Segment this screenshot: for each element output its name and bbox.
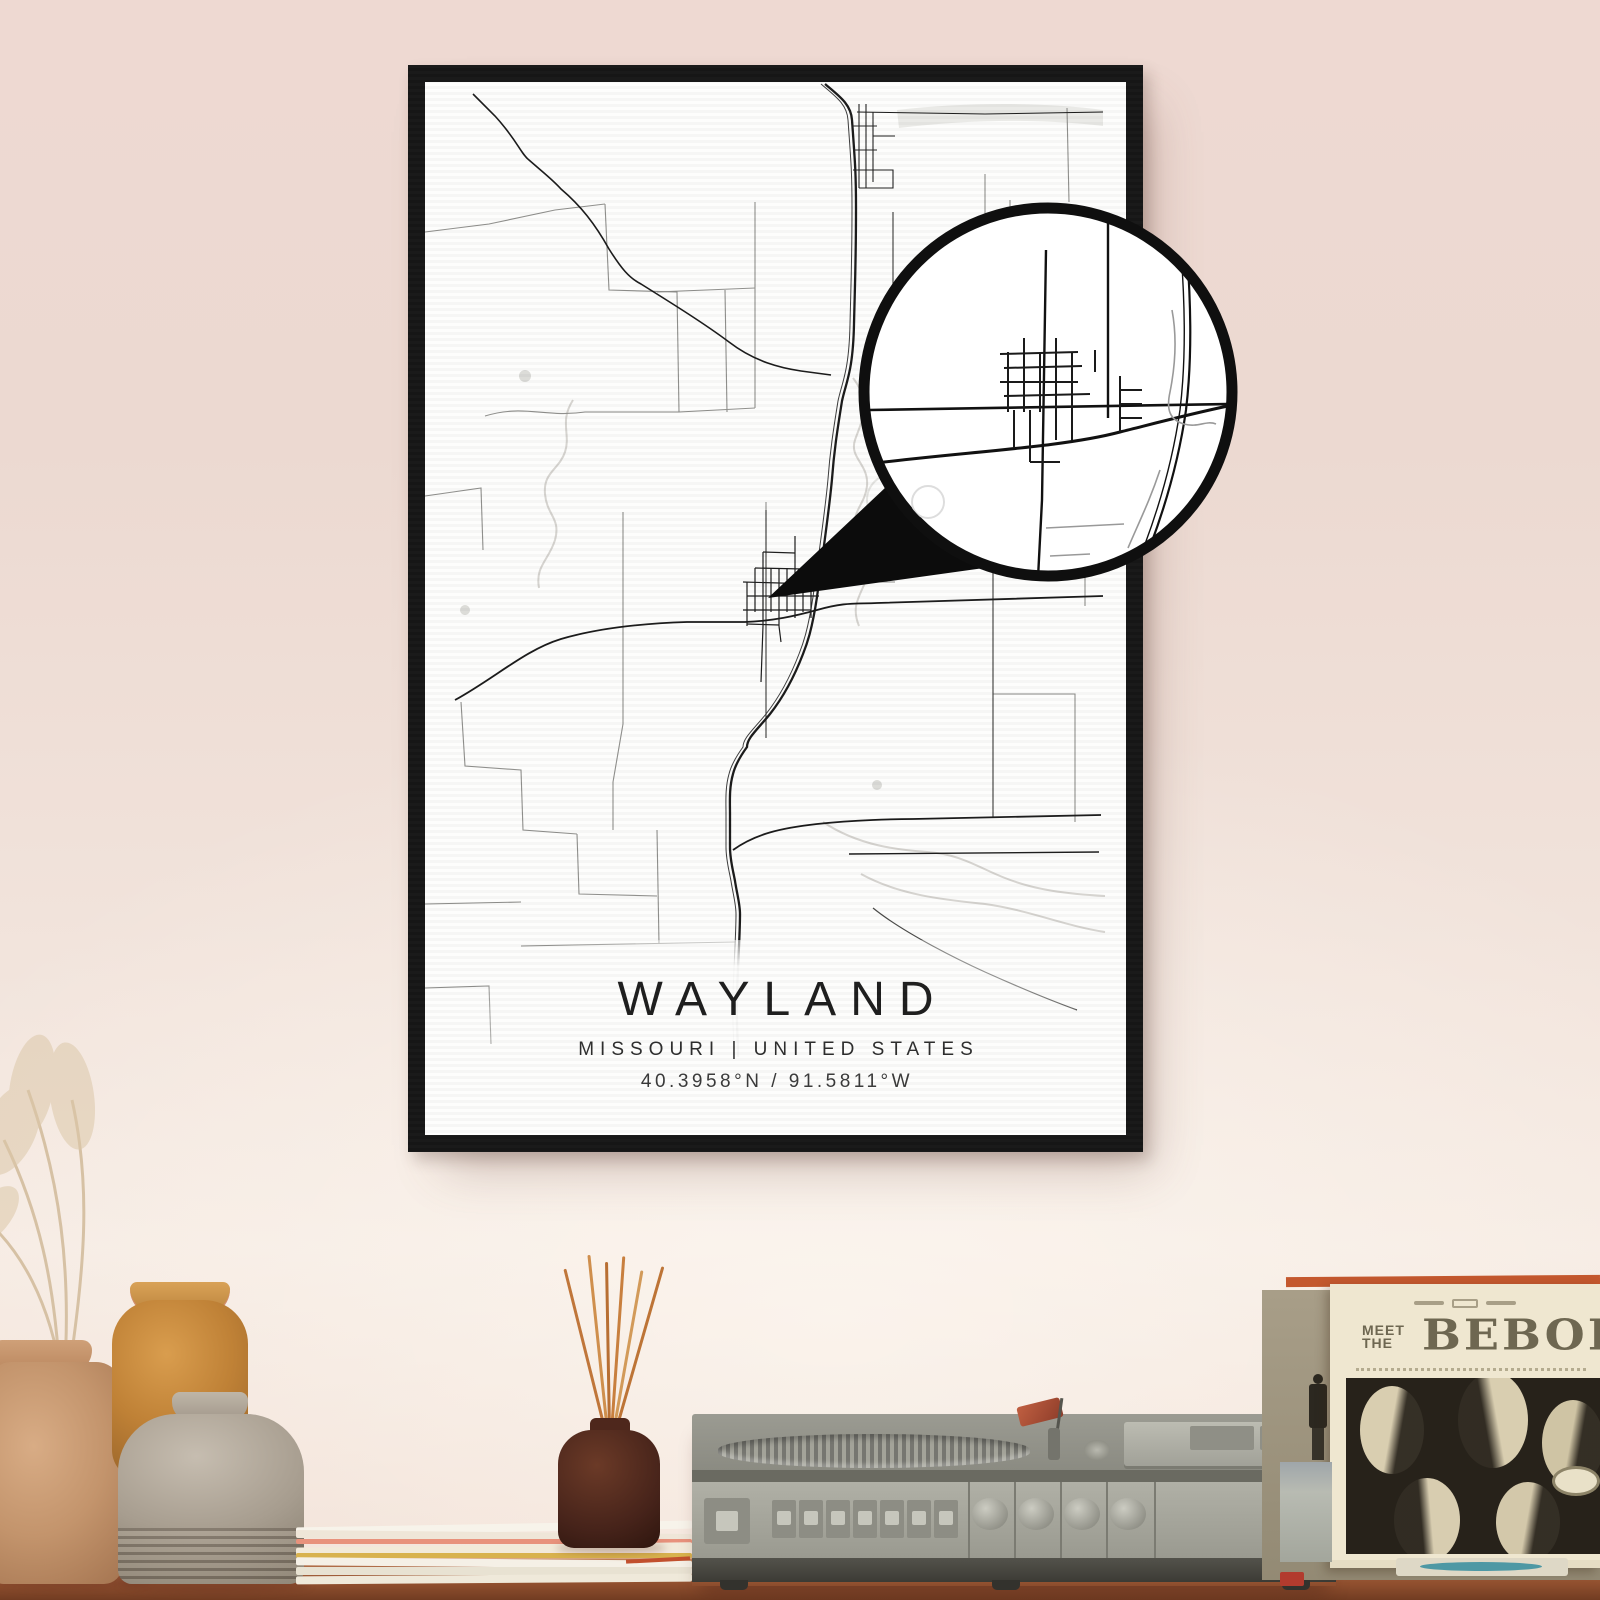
album-word-the: THE: [1362, 1337, 1405, 1350]
gray-vase-ridges: [118, 1528, 304, 1584]
player-button: [826, 1500, 850, 1538]
magazine: [296, 1574, 692, 1585]
character-face: [1394, 1478, 1460, 1554]
mark: [1486, 1301, 1516, 1305]
player-button: [934, 1500, 958, 1538]
bass-knob: [1018, 1498, 1054, 1530]
player-button: [880, 1500, 904, 1538]
mark: [1414, 1301, 1444, 1305]
poster-title: WAYLAND: [476, 972, 1076, 1027]
poster-coordinates: 40.3958°N / 91.5811°W: [476, 1071, 1076, 1093]
player-button: [853, 1500, 877, 1538]
treble-knob: [1064, 1498, 1100, 1530]
button-cap: [804, 1511, 818, 1525]
tan-vase: [0, 1362, 122, 1584]
figure-legs: [1312, 1428, 1324, 1460]
player-front-panel: [692, 1482, 1336, 1558]
tuner-knob: [1110, 1498, 1146, 1530]
panel-seam: [1106, 1482, 1108, 1558]
character-face: [1360, 1386, 1424, 1474]
panel-seam: [1154, 1482, 1156, 1558]
tonearm-post: [1048, 1428, 1060, 1460]
button-cap: [939, 1511, 953, 1525]
album-publisher-marks: [1400, 1298, 1530, 1308]
power-button-cap: [716, 1511, 738, 1531]
player-plinth: [692, 1558, 1336, 1582]
player-button: [907, 1500, 931, 1538]
diffuser-bottle: [558, 1430, 660, 1548]
panel-seam: [1060, 1482, 1062, 1558]
panel-seam: [968, 1482, 970, 1558]
album-meet-the: MEET THE: [1362, 1324, 1405, 1350]
button-cap: [912, 1511, 926, 1525]
player-foot: [720, 1580, 748, 1590]
poster-subtitle: MISSOURI | UNITED STATES: [476, 1039, 1076, 1061]
character-face: [1496, 1482, 1560, 1554]
album-dotted-line: [1356, 1368, 1586, 1371]
player-bevel: [692, 1470, 1336, 1482]
button-cap: [777, 1511, 791, 1525]
diffuser-reeds: [604, 1262, 614, 1432]
album-photo-art: [1346, 1378, 1600, 1554]
sleeve-figure-art: [1306, 1374, 1330, 1460]
album-oval-logo: [1552, 1466, 1600, 1496]
player-foot: [992, 1580, 1020, 1590]
player-button: [772, 1500, 796, 1538]
small-red-object: [1280, 1572, 1304, 1586]
deck-knob: [1084, 1440, 1110, 1460]
album-title: BEBOP: [1422, 1310, 1600, 1360]
magnifier-callout: [730, 178, 1260, 624]
figure-head: [1313, 1374, 1323, 1384]
gray-vase: [118, 1414, 304, 1584]
figure-body: [1309, 1384, 1327, 1428]
player-button: [799, 1500, 823, 1538]
character-face: [1458, 1378, 1528, 1468]
volume-knob: [972, 1498, 1008, 1530]
bebop-album-cover: MEET THE BEBOP: [1330, 1284, 1600, 1568]
water-band: [897, 104, 1103, 128]
record-player: [692, 1414, 1336, 1586]
button-cap: [831, 1511, 845, 1525]
magnifier-circle: [864, 208, 1232, 576]
turntable-platter: [718, 1434, 1030, 1468]
cassette-tab: [1190, 1426, 1254, 1450]
record-label-ellipse: [1420, 1562, 1542, 1571]
poster-title-block: WAYLAND MISSOURI | UNITED STATES 40.3958…: [476, 940, 1076, 1135]
button-cap: [885, 1511, 899, 1525]
panel-seam: [1014, 1482, 1016, 1558]
small-gray-box: [1280, 1462, 1332, 1562]
button-cap: [858, 1511, 872, 1525]
flat-record-sleeve: [1396, 1558, 1568, 1576]
room-scene: WAYLAND MISSOURI | UNITED STATES 40.3958…: [0, 0, 1600, 1600]
power-button: [704, 1498, 750, 1544]
mark: [1452, 1299, 1478, 1308]
player-top-deck: [692, 1414, 1336, 1470]
north-town-grid: [853, 104, 895, 188]
